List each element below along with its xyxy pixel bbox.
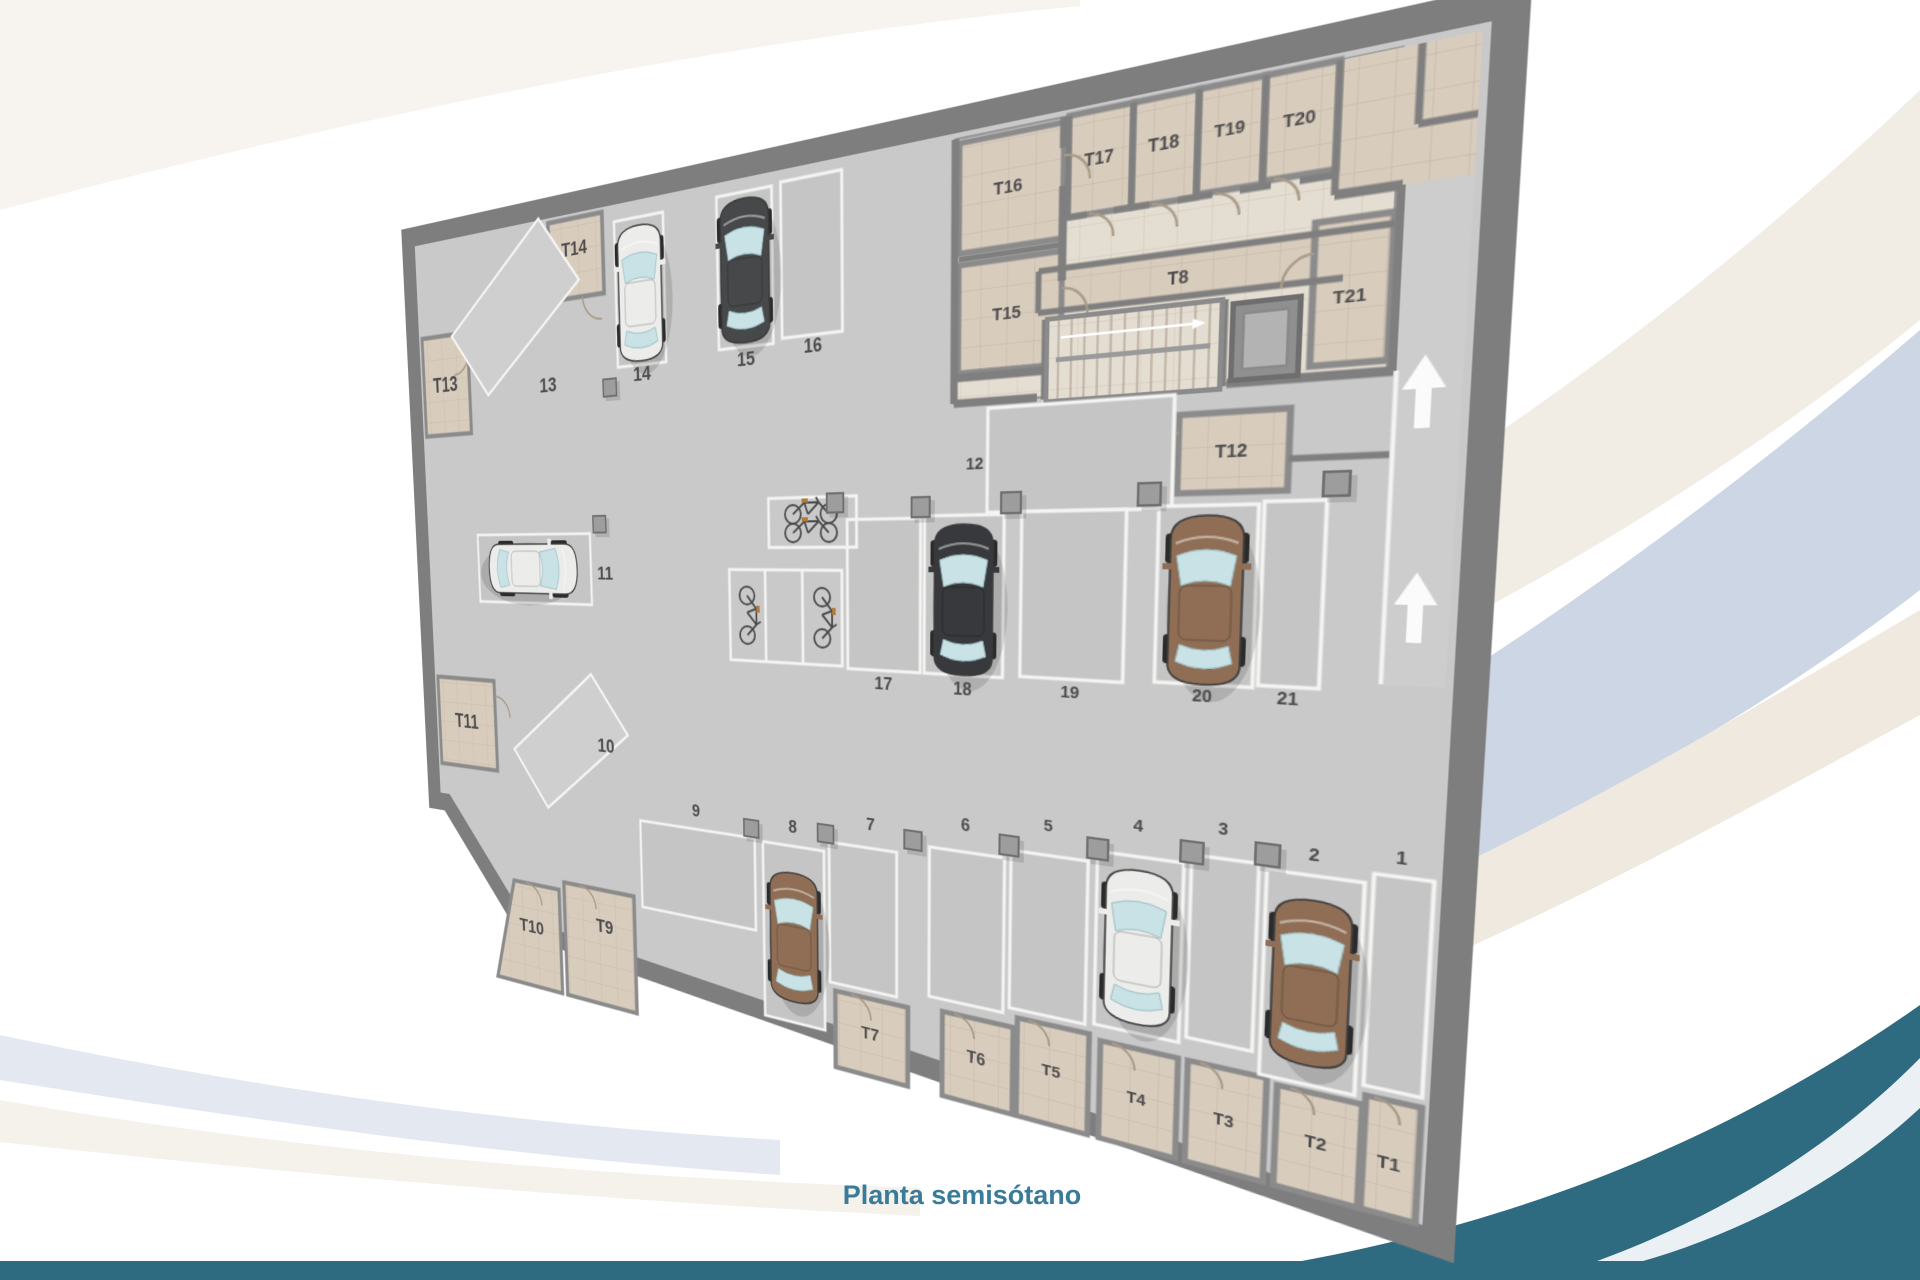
page-title: Planta semisótano	[843, 1180, 1082, 1211]
parking-spot-label: 3	[1218, 821, 1229, 841]
parking-spot-label: 1	[1395, 849, 1409, 870]
parking-spot-label: 5	[1044, 817, 1054, 837]
parking-spot-label: 18	[953, 681, 972, 701]
parking-spot-label: 4	[1133, 816, 1144, 837]
spot-7	[829, 842, 897, 997]
parking-spot-label: 2	[1309, 846, 1322, 867]
spot-16	[780, 170, 842, 339]
parking-spot-label: 6	[961, 817, 970, 836]
storage-room-label: T9	[596, 916, 614, 940]
storage-room-label: T12	[1215, 442, 1249, 463]
elevator-icon	[1231, 296, 1301, 380]
parking-spot-label: 9	[692, 800, 701, 820]
spot-5	[1009, 850, 1088, 1024]
parking-spot-label: 19	[1060, 683, 1079, 703]
parking-spot-label: 12	[966, 454, 984, 474]
parking-spot-label: 10	[597, 735, 615, 758]
storage-room-label: T21	[1332, 285, 1367, 308]
parking-spot-label: 11	[597, 563, 613, 585]
parking-spot-label: 17	[874, 673, 892, 695]
parking-spot-label: 15	[737, 347, 756, 371]
parking-spot-label: 14	[633, 361, 652, 386]
parking-spot-label: 16	[804, 333, 822, 358]
spot-1	[1364, 874, 1435, 1098]
parking-spot-label: 7	[866, 814, 875, 835]
storage-room-label: T15	[992, 302, 1021, 325]
spot-17	[847, 518, 920, 673]
parking-spot-label: 8	[788, 816, 797, 838]
spot-19	[1020, 509, 1127, 682]
storage-room-label: T13	[433, 371, 459, 398]
parking-spot-label: 20	[1192, 688, 1213, 708]
storage-room-label: T14	[561, 235, 588, 263]
spot-6	[929, 847, 1005, 1013]
stairs	[1046, 300, 1223, 402]
storage-room-label: T8	[1167, 268, 1190, 291]
parking-spot-label: 21	[1276, 690, 1299, 711]
spot-21	[1258, 500, 1327, 689]
storage-room-label: T11	[455, 708, 480, 733]
spot-3	[1186, 855, 1259, 1052]
parking-spot-label: 13	[539, 373, 557, 398]
teal-bar	[0, 1261, 1920, 1280]
room-T9	[564, 882, 637, 1013]
